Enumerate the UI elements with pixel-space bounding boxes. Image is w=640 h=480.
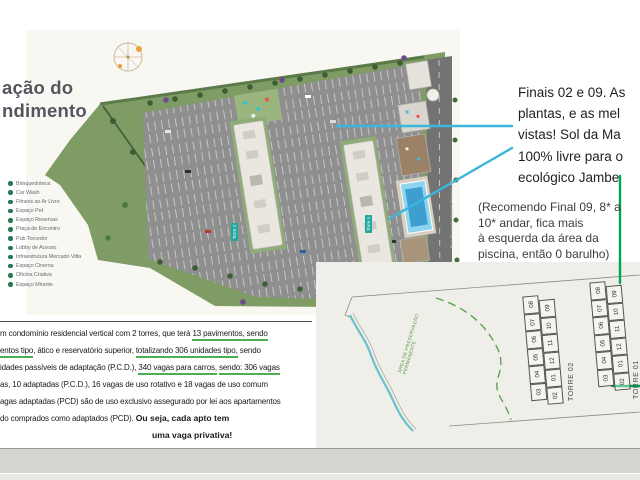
legend-item: Lobby de Acesso bbox=[8, 245, 81, 250]
legend-item: Espaço Mirante bbox=[8, 282, 81, 287]
amenity-dot-icon bbox=[8, 273, 13, 278]
callout-line: vistas! Sol da Ma bbox=[518, 124, 640, 145]
legend-item: Praça de Encontro bbox=[8, 227, 81, 232]
note-line: piscina, então 0 barulho) bbox=[478, 247, 640, 263]
legend-item: Fitness ao Ar Livre bbox=[8, 199, 81, 204]
page: ação do ndimento Brinquedoteca Car Wash … bbox=[0, 0, 640, 480]
callout-line: ecológico Jambe bbox=[518, 167, 640, 188]
unit-cell: 05 bbox=[527, 348, 544, 367]
unit-cell: 04 bbox=[528, 365, 545, 384]
legend-item: Espaço Cinema bbox=[8, 264, 81, 269]
page-title-line-2: ndimento bbox=[2, 99, 87, 122]
unit-cell: 10 bbox=[607, 302, 624, 321]
description-line: m condomínio residencial vertical com 2 … bbox=[0, 325, 312, 342]
legend-item: Infraestrutura Mercado Vitta bbox=[8, 255, 81, 260]
torre-01-label: TORRE 01 bbox=[633, 360, 640, 399]
legend-item: Espaço Pet bbox=[8, 209, 81, 214]
amenity-dot-icon bbox=[8, 218, 13, 223]
unit-cell: 08 bbox=[522, 295, 539, 314]
description-line: agas adaptadas (PCD) são de uso exclusiv… bbox=[0, 393, 312, 410]
compass-icon bbox=[114, 43, 142, 71]
amenity-dot-icon bbox=[8, 264, 13, 269]
unit-cell: 04 bbox=[595, 351, 612, 370]
note-line: 10* andar, fica mais bbox=[478, 216, 640, 232]
unit-cell: 03 bbox=[597, 368, 614, 387]
unit-cell: 12 bbox=[610, 337, 627, 356]
description-line: uma vaga privativa! bbox=[152, 427, 312, 444]
entrance-plaza bbox=[427, 89, 439, 101]
bottom-gray-strip bbox=[0, 448, 640, 473]
unit-cell: 07 bbox=[524, 313, 541, 332]
legend-item: Brinquedoteca bbox=[8, 181, 81, 186]
amenities-legend: Brinquedoteca Car Wash Fitness ao Ar Liv… bbox=[8, 181, 81, 291]
description-line: as, 10 adaptadas (P.C.D.), 16 vagas de u… bbox=[0, 376, 312, 393]
callout-line: Finais 02 e 09. As bbox=[518, 82, 640, 103]
unit-cell: 06 bbox=[525, 330, 542, 349]
unit-cell: 09 bbox=[539, 299, 556, 318]
amenity-dot-icon bbox=[8, 200, 13, 205]
amenity-dot-icon bbox=[8, 282, 13, 287]
description-line: do comprados como adaptados (PCD). Ou se… bbox=[0, 410, 312, 427]
amenity-dot-icon bbox=[8, 236, 13, 241]
unit-cell: 09 bbox=[606, 285, 623, 304]
unit-cell: 12 bbox=[543, 351, 560, 370]
amenity-dot-icon bbox=[8, 246, 13, 251]
page-title-line-1: ação do bbox=[2, 76, 87, 99]
unit-cell: 05 bbox=[594, 334, 611, 353]
unit-cell: 08 bbox=[589, 281, 606, 300]
tower-1-tag: Torre 1 bbox=[365, 215, 372, 233]
recommendation-note: (Recomendo Final 09, 8* a 10* andar, fic… bbox=[478, 200, 640, 262]
purple-tree-icon bbox=[163, 97, 169, 103]
note-line: à esquerda da área da bbox=[478, 231, 640, 247]
callout-line: 100% livre para o bbox=[518, 146, 640, 167]
legend-item: Car Wash bbox=[8, 190, 81, 195]
legend-item: Espaço Reservas bbox=[8, 218, 81, 223]
unit-cell: 02 bbox=[613, 372, 630, 391]
unit-cell: 06 bbox=[592, 316, 609, 335]
legend-item: Pub Torcedor bbox=[8, 236, 81, 241]
unit-cell: 11 bbox=[609, 320, 626, 339]
street-label: Rua Recanto Miguel Pereira 300 bbox=[449, 178, 454, 248]
callout-line: plantas, e as mel bbox=[518, 103, 640, 124]
torre-02-label: TORRE 02 bbox=[568, 362, 575, 401]
description-line: entos tipo, ático e reservatório superio… bbox=[0, 342, 312, 359]
unit-cell: 07 bbox=[591, 299, 608, 318]
amenity-dot-icon bbox=[8, 181, 13, 186]
unit-cell: 11 bbox=[542, 334, 559, 353]
unit-cell: 01 bbox=[545, 369, 562, 388]
unit-cell: 10 bbox=[540, 316, 557, 335]
callout-text: Finais 02 e 09. As plantas, e as mel vis… bbox=[518, 82, 640, 188]
description-line: idades passíveis de adaptação (P.C.D.), … bbox=[0, 359, 312, 376]
page-title: ação do ndimento bbox=[2, 76, 87, 122]
bottom-footer-strip bbox=[0, 474, 640, 480]
unit-cell: 01 bbox=[612, 355, 629, 374]
amenity-dot-icon bbox=[8, 227, 13, 232]
note-line: (Recomendo Final 09, 8* a bbox=[478, 200, 640, 216]
unit-cell: 03 bbox=[530, 382, 547, 401]
description-block: m condomínio residencial vertical com 2 … bbox=[0, 321, 312, 449]
legend-item: Oficina Criativa bbox=[8, 273, 81, 278]
tower-2-tag: Torre 2 bbox=[231, 223, 238, 241]
amenity-dot-icon bbox=[8, 209, 13, 214]
unit-cell: 02 bbox=[546, 386, 563, 405]
amenity-dot-icon bbox=[8, 255, 13, 260]
amenity-dot-icon bbox=[8, 190, 13, 195]
